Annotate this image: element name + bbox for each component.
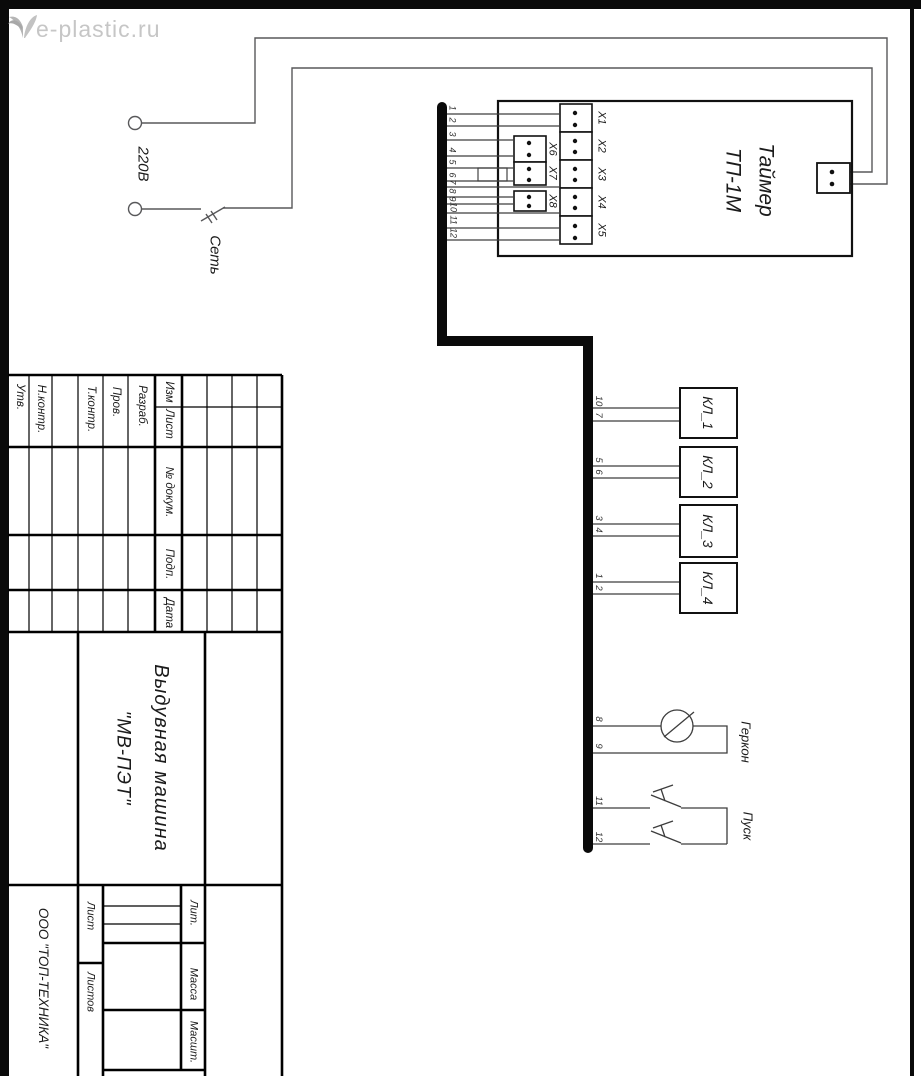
mains-switch-label: Сеть: [208, 235, 223, 274]
valve-label-kl3: КЛ_3: [701, 514, 715, 547]
titleblock-tkontr: Т.контр.: [84, 386, 96, 432]
valve4-wire-top: 1: [593, 573, 603, 578]
titleblock-lit: Лит.: [188, 900, 199, 926]
valve-label-kl1: КЛ_1: [701, 396, 715, 429]
wire-number-11: 11: [449, 215, 458, 224]
titleblock-sheets: Листов: [85, 972, 96, 1012]
wire-number-1: 1: [448, 105, 457, 110]
wire-number-8: 8: [448, 188, 457, 193]
wire-number-6: 6: [448, 172, 457, 177]
wire-number-7: 7: [448, 179, 457, 184]
connector-label-x3: Х3: [596, 167, 607, 180]
timer-name-line1: Таймер: [756, 143, 777, 216]
wire-number-5: 5: [448, 159, 457, 164]
wire-number-3: 3: [448, 131, 457, 136]
titleblock-nkontr: Н.контр.: [34, 385, 46, 434]
valve1-wire-top: 10: [593, 396, 603, 407]
start-wire-bottom: 12: [593, 832, 603, 843]
jumper-loop: [478, 168, 507, 181]
connector-label-x7: Х7: [547, 166, 558, 179]
titleblock-sheet: Лист: [85, 902, 96, 930]
connector-label-x4: Х4: [596, 195, 607, 208]
titleblock-list-col: Лист: [162, 409, 174, 439]
titleblock-prov: Пров.: [109, 387, 121, 417]
connector-label-x8: Х8: [547, 194, 558, 207]
valve-label-kl2: КЛ_2: [701, 455, 715, 488]
reed-switch-label: Геркон: [740, 721, 753, 762]
wire-number-2: 2: [448, 117, 457, 122]
valve3-wire-bottom: 4: [593, 527, 603, 532]
timer-name-line2: ТП-1М: [723, 148, 744, 212]
titleblock-dokum: № докум.: [162, 467, 174, 518]
titleblock-massa: Масса: [188, 968, 199, 1001]
titleblock-utv: Утв.: [13, 384, 25, 410]
start-button-label: Пуск: [742, 812, 755, 841]
valve3-wire-top: 3: [593, 515, 603, 520]
valve2-wire-top: 5: [593, 457, 603, 462]
wire-number-9: 9: [448, 196, 457, 201]
product-name-line1: Выдувная машина: [151, 664, 171, 851]
titleblock-data: Дата: [162, 598, 174, 628]
schematic-sheet: e-plastic.ru: [0, 0, 921, 1076]
company-name: ООО "ТОП-ТЕХНИКА": [36, 908, 50, 1048]
timer-power-connector: [817, 163, 850, 193]
start-wire-top: 11: [593, 796, 603, 806]
connector-label-x6: Х6: [547, 142, 558, 155]
reed-wire-top: 8: [593, 716, 603, 721]
start-button-blade-1: [651, 795, 681, 807]
valve2-wire-bottom: 6: [593, 469, 603, 474]
titleblock-masshtab: Масшт.: [188, 1021, 199, 1063]
connector-column-x6-x8: [514, 136, 546, 211]
valve4-wire-bottom: 2: [593, 585, 603, 590]
terminal-220v-top: [129, 117, 142, 130]
valve-wires: [593, 408, 680, 594]
connector-label-x1: Х1: [596, 111, 607, 124]
wire-number-4: 4: [448, 147, 457, 152]
titleblock-razrab: Разраб.: [135, 385, 147, 427]
connector-label-x2: Х2: [596, 139, 607, 152]
titleblock-izm: Изм: [162, 381, 174, 402]
reed-wire-bottom: 9: [593, 743, 603, 748]
wire-number-10: 10: [449, 202, 458, 212]
start-button-blade-2: [651, 831, 681, 843]
reed-switch-circuit: [593, 710, 727, 753]
titleblock-podp: Подп.: [162, 549, 174, 580]
wire-number-12: 12: [449, 228, 458, 238]
product-name-line2: "МВ-ПЭТ": [114, 711, 133, 806]
valve1-wire-bottom: 7: [593, 412, 603, 417]
voltage-label: 220В: [136, 146, 151, 181]
valve-label-kl4: КЛ_4: [701, 571, 715, 604]
connector-label-x5: Х5: [596, 223, 607, 236]
terminal-220v-bottom: [129, 203, 142, 216]
start-button-circuit: [593, 785, 727, 844]
